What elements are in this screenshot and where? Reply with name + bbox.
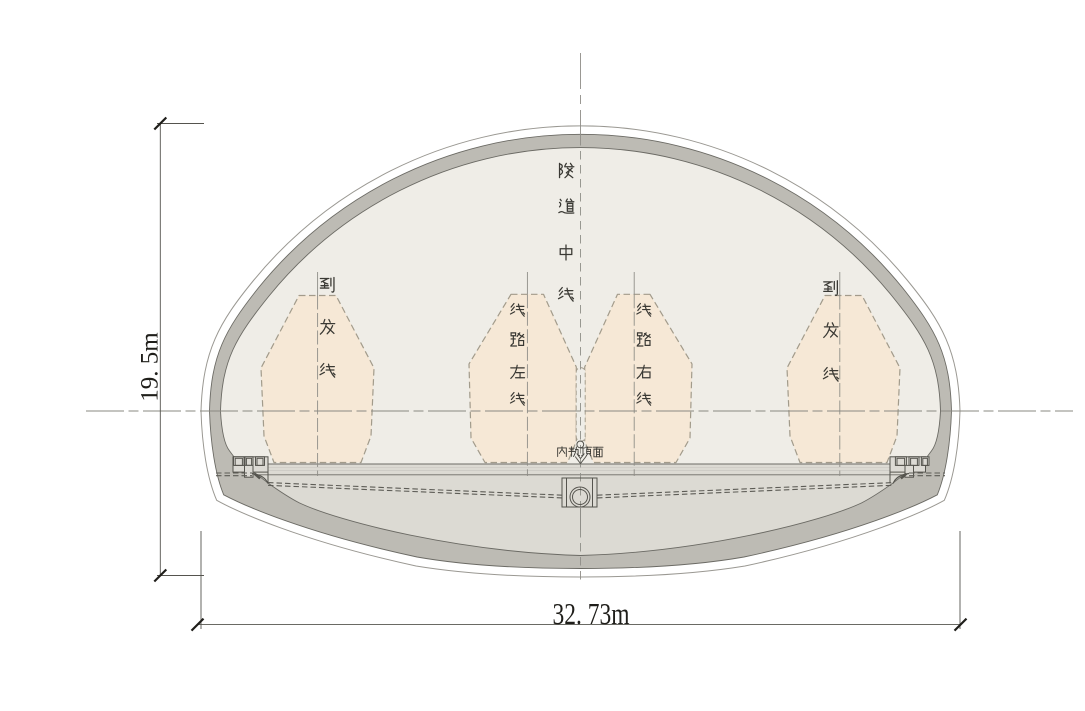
- svg-text:32. 73m: 32. 73m: [553, 596, 630, 631]
- svg-text:19. 5m: 19. 5m: [137, 332, 164, 402]
